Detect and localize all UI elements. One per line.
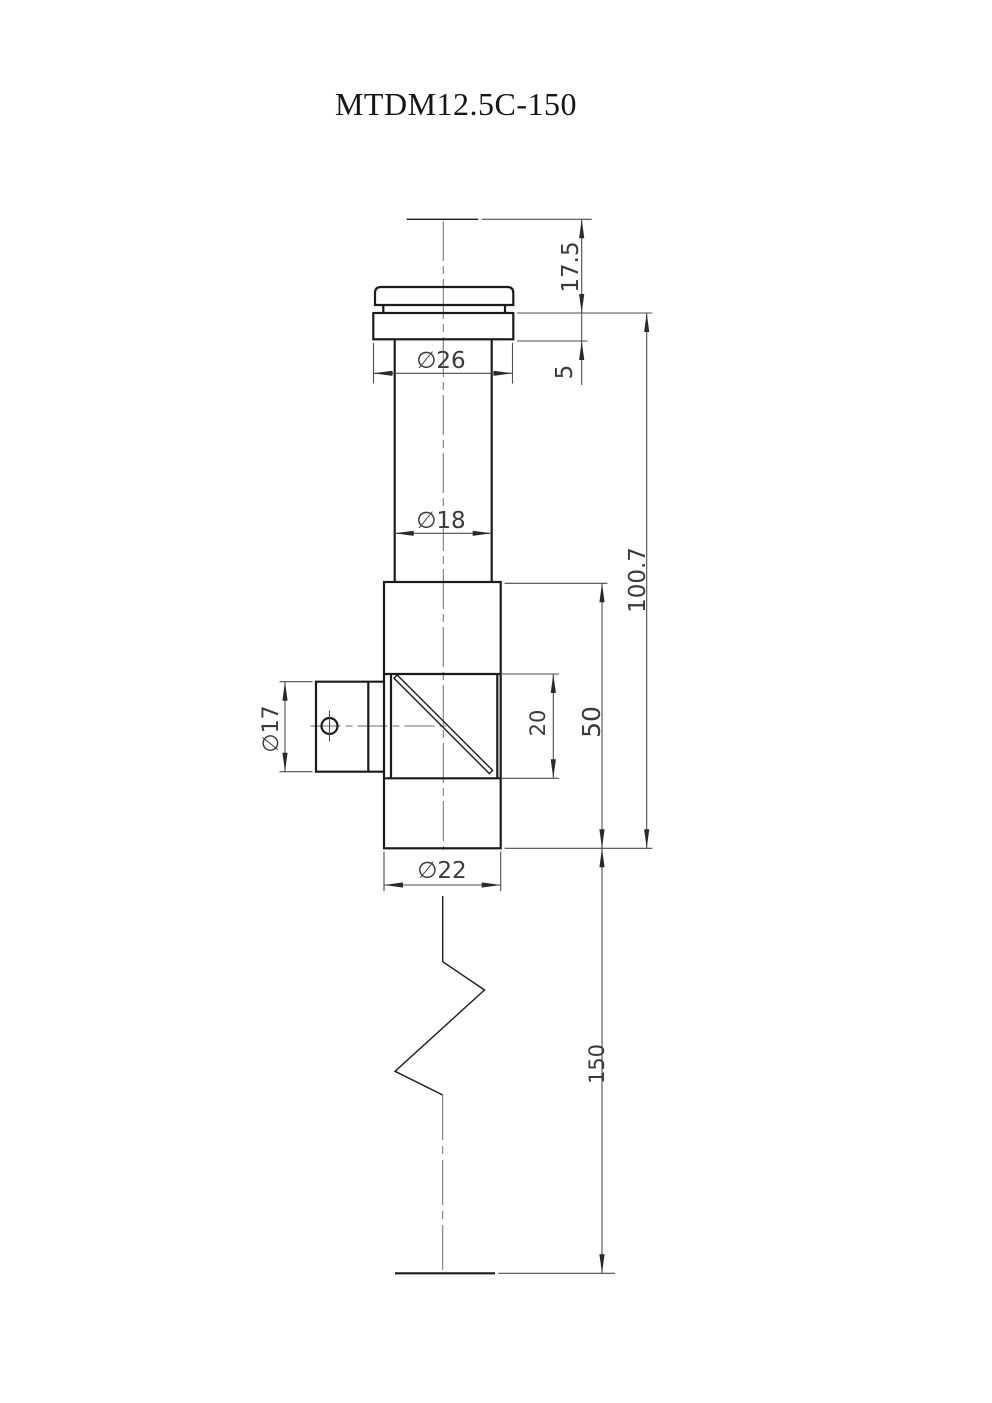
arrowhead	[644, 313, 649, 332]
dim-text-housing-length: 50	[577, 706, 606, 738]
drawing-canvas: MTDM12.5C-150 ∅26 ∅18 ∅22 17.5 5 100.7 5…	[0, 0, 992, 1403]
arrowhead	[282, 682, 287, 701]
dim-text-flange-diameter: ∅26	[416, 348, 465, 374]
arrowhead	[579, 341, 584, 360]
extension-lines	[280, 219, 653, 1273]
dim-text-housing-diameter: ∅22	[417, 858, 466, 884]
arrowhead	[395, 531, 414, 536]
arrowhead	[579, 294, 584, 313]
dim-text-probe-length: 150	[585, 1044, 609, 1084]
arrowhead	[551, 759, 556, 778]
dim-text-upper-length: 100.7	[625, 547, 651, 613]
centerlines	[311, 221, 447, 850]
eyepiece-cap	[375, 287, 513, 305]
dim-text-tube-diameter: ∅18	[416, 508, 465, 534]
arrowhead	[494, 371, 513, 376]
arrowhead	[599, 848, 604, 867]
arrowhead	[551, 674, 556, 693]
arrowhead	[579, 219, 584, 238]
drawing-title: MTDM12.5C-150	[335, 86, 577, 122]
prism-housing	[384, 582, 501, 848]
arrowhead	[384, 882, 403, 887]
drawing-sheet: MTDM12.5C-150 ∅26 ∅18 ∅22 17.5 5 100.7 5…	[0, 0, 992, 1403]
arrowhead	[473, 531, 492, 536]
arrowhead	[599, 583, 604, 602]
part-outline	[316, 219, 513, 1273]
arrowhead	[482, 882, 501, 887]
side-port	[316, 682, 384, 772]
dimension-lines	[282, 219, 649, 1273]
dim-20	[551, 674, 556, 778]
arrowhead	[282, 753, 287, 772]
arrowhead	[374, 371, 393, 376]
dim-text-port-diameter: ∅17	[259, 705, 284, 752]
dim-text-flange-thickness: 5	[552, 365, 578, 380]
dim-text-window-length: 20	[526, 710, 550, 737]
arrowhead	[599, 829, 604, 848]
dim-text-eyepoint-offset: 17.5	[558, 241, 584, 292]
arrowhead	[644, 829, 649, 848]
break-line	[395, 962, 485, 1095]
arrowhead	[599, 1254, 604, 1273]
